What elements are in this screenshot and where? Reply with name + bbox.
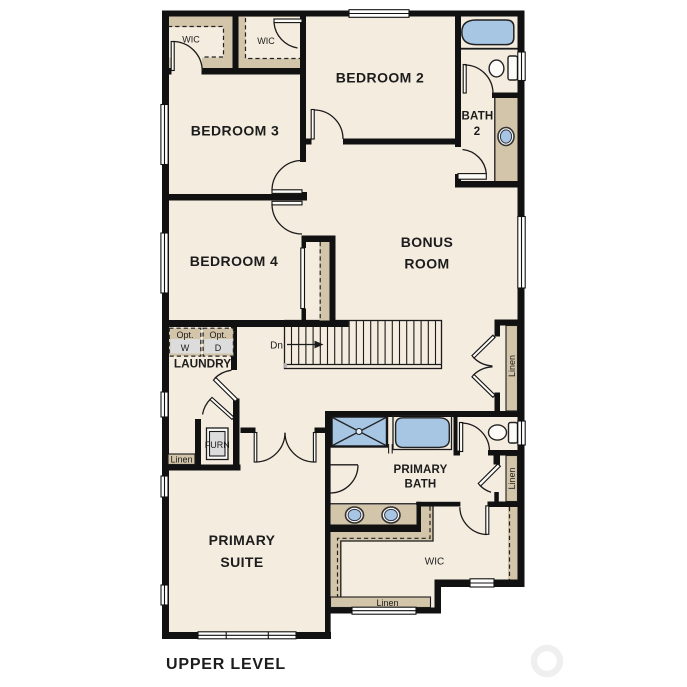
svg-text:Opt.: Opt. [209,330,226,340]
svg-text:W: W [181,343,190,353]
svg-text:Linen: Linen [376,598,398,608]
svg-text:D: D [215,343,222,353]
svg-text:PRIMARY: PRIMARY [209,532,276,548]
svg-text:WIC: WIC [257,36,275,46]
svg-text:Linen: Linen [507,467,517,489]
svg-text:WIC: WIC [182,35,200,45]
svg-text:BATH: BATH [462,111,494,123]
svg-text:BEDROOM 3: BEDROOM 3 [191,123,279,139]
svg-text:BEDROOM 4: BEDROOM 4 [190,253,278,269]
svg-text:SUITE: SUITE [220,554,263,570]
svg-text:Linen: Linen [507,355,517,377]
svg-text:FURN: FURN [205,440,230,450]
svg-text:BEDROOM 2: BEDROOM 2 [336,70,424,86]
svg-text:WIC: WIC [425,557,444,568]
svg-text:Opt.: Opt. [176,330,193,340]
svg-text:Linen: Linen [170,455,192,465]
svg-text:BATH: BATH [405,479,437,491]
svg-text:BONUS: BONUS [401,234,454,250]
svg-text:Dn: Dn [270,341,283,352]
svg-text:2: 2 [474,126,481,138]
svg-text:LAUNDRY: LAUNDRY [174,357,231,371]
svg-text:ROOM: ROOM [404,256,449,272]
svg-text:PRIMARY: PRIMARY [393,464,447,476]
svg-text:UPPER LEVEL: UPPER LEVEL [166,656,286,673]
